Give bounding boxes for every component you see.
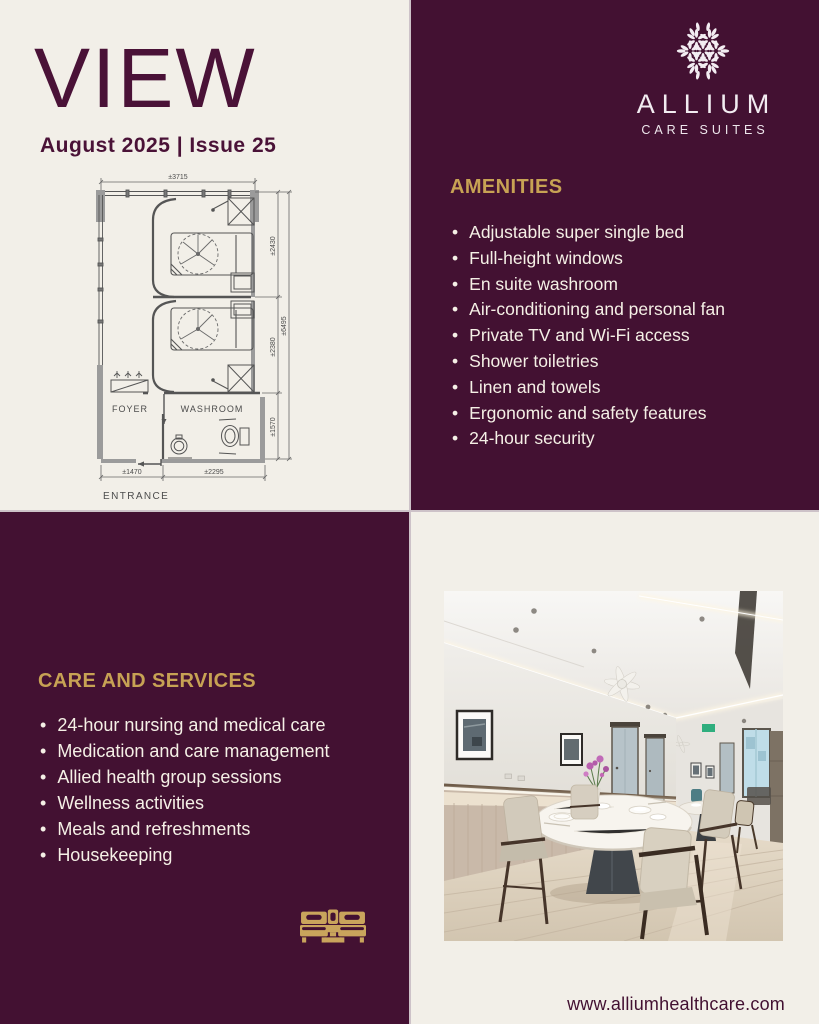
allium-flower-icon [673,22,733,80]
brand-logo: ALLIUM CARE SUITES [613,22,793,137]
walls [96,190,265,463]
exit-sign [702,724,715,732]
room-label-entrance: ENTRANCE [103,491,169,502]
issue-line: August 2025 | Issue 25 [40,134,276,158]
room-label-foyer: FOYER [112,404,148,414]
amenity-item: Air-conditioning and personal fan [450,297,725,323]
wardrobe-2 [212,365,254,392]
sink [168,435,192,458]
chair-back [570,785,600,819]
dining-room-photo [444,591,783,941]
amenity-item: Linen and towels [450,375,725,401]
quadrant-amenities: ALLIUM CARE SUITES AMENITIES Adjustable … [410,0,819,512]
dim-label-bottom-left: ±1470 [122,469,142,476]
amenity-item: Private TV and Wi-Fi access [450,323,725,349]
quadrant-divider-vertical [409,0,411,1024]
room-label-washroom: WASHROOM [181,404,244,414]
care-services-heading: CARE AND SERVICES [38,670,256,693]
amenities-heading: AMENITIES [450,176,563,199]
amenity-item: Shower toiletries [450,349,725,375]
service-item: Housekeeping [38,842,329,868]
page-title: VIEW [34,36,257,120]
ceiling-fan-symbol-2 [178,309,218,349]
service-item: 24-hour nursing and medical care [38,712,329,738]
website-link[interactable]: www.alliumhealthcare.com [567,994,785,1015]
brand-tagline: CARE SUITES [613,123,793,137]
service-item: Wellness activities [38,790,329,816]
curved-wall-room2 [153,301,176,392]
window-wall [98,190,250,365]
quadrant-masthead: VIEW August 2025 | Issue 25 [0,0,410,512]
newsletter-page: VIEW August 2025 | Issue 25 [0,0,819,1024]
care-services-list: 24-hour nursing and medical care Medicat… [38,712,329,868]
wardrobe-1 [212,198,254,225]
service-item: Meals and refreshments [38,816,329,842]
dim-label-room2: ±2380 [270,337,277,357]
dim-label-room1: ±2430 [270,236,277,256]
amenities-list: Adjustable super single bed Full-height … [450,220,725,452]
amenity-item: Ergonomic and safety features [450,401,725,427]
picture-frame-medium [561,734,582,765]
amenity-item: 24-hour security [450,426,725,452]
service-item: Medication and care management [38,738,329,764]
quadrant-care-services: CARE AND SERVICES 24-hour nursing and me… [0,512,410,1024]
door-1 [610,722,640,805]
twin-beds-icon [300,904,366,946]
door-2 [644,734,666,801]
toilet [219,419,249,454]
service-item: Allied health group sessions [38,764,329,790]
far-cabinetry [770,731,783,843]
washroom-door [162,394,167,424]
picture-frame-large [457,711,492,759]
foyer-bench [111,371,148,392]
far-door [720,743,734,793]
brand-name: ALLIUM [613,89,793,120]
quadrant-divider-horizontal [0,510,819,512]
curved-wall-room1 [153,199,176,297]
ceiling-fan-symbol-1 [178,234,218,274]
amenity-item: Full-height windows [450,246,725,272]
dim-label-top: ±3715 [168,174,188,181]
entrance-door [138,459,161,467]
amenity-item: Adjustable super single bed [450,220,725,246]
dim-label-total: ±6495 [281,316,288,336]
dim-label-washroom: ±1570 [270,417,277,437]
amenity-item: En suite washroom [450,272,725,298]
quadrant-photo: www.alliumhealthcare.com [410,512,819,1024]
floor-plan: ±3715 ±2430 ±2380 ±1570 ±6495 ±1470 ±229… [86,168,301,508]
bedside-cabinet-1 [231,273,254,292]
bedside-cabinet-2 [231,301,254,318]
dim-label-bottom-right: ±2295 [204,469,224,476]
